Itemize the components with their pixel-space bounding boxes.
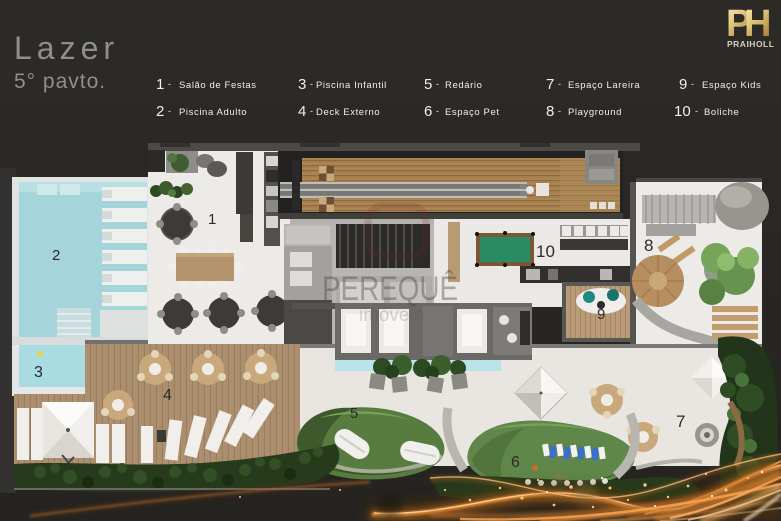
svg-text:5: 5 <box>350 405 358 422</box>
svg-text:Espaço Pet: Espaço Pet <box>445 107 500 118</box>
svg-text:3: 3 <box>298 76 306 93</box>
svg-text:-: - <box>436 106 439 116</box>
svg-text:-: - <box>310 79 313 89</box>
svg-text:PEREQUÊ: PEREQUÊ <box>322 270 458 308</box>
svg-text:4: 4 <box>298 103 306 120</box>
svg-text:1: 1 <box>156 76 164 93</box>
svg-text:Espaço Lareira: Espaço Lareira <box>568 80 640 91</box>
svg-text:10: 10 <box>536 242 555 261</box>
svg-text:10: 10 <box>674 103 691 120</box>
svg-text:6: 6 <box>511 454 520 471</box>
svg-text:PRAIHOLL: PRAIHOLL <box>727 39 774 49</box>
svg-text:imóveis: imóveis <box>359 305 423 326</box>
svg-text:6: 6 <box>424 103 432 120</box>
svg-text:5° pavto.: 5° pavto. <box>14 70 106 93</box>
svg-text:Redário: Redário <box>445 80 482 91</box>
svg-text:7: 7 <box>546 76 554 93</box>
svg-text:Boliche: Boliche <box>704 107 739 118</box>
svg-text:2: 2 <box>52 247 60 264</box>
svg-text:-: - <box>168 106 171 116</box>
svg-text:7: 7 <box>676 412 685 431</box>
svg-text:-: - <box>558 106 561 116</box>
svg-text:8: 8 <box>644 236 653 255</box>
svg-text:Salão de Festas: Salão de Festas <box>179 80 257 91</box>
svg-text:Lazer: Lazer <box>14 30 119 66</box>
svg-text:-: - <box>558 79 561 89</box>
svg-text:1: 1 <box>208 211 216 228</box>
svg-text:Espaço Kids: Espaço Kids <box>702 80 761 91</box>
svg-text:8: 8 <box>546 103 554 120</box>
svg-text:Playground: Playground <box>568 107 622 118</box>
svg-text:-: - <box>691 79 694 89</box>
svg-text:4: 4 <box>163 387 172 404</box>
svg-text:9: 9 <box>597 306 605 323</box>
svg-text:-: - <box>310 106 313 116</box>
svg-text:Deck Externo: Deck Externo <box>316 107 380 118</box>
svg-text:-: - <box>436 79 439 89</box>
svg-text:Piscina Adulto: Piscina Adulto <box>179 107 247 118</box>
svg-text:5: 5 <box>424 76 432 93</box>
svg-text:-: - <box>168 79 171 89</box>
svg-text:9: 9 <box>679 76 687 93</box>
svg-text:-: - <box>695 106 698 116</box>
svg-text:Piscina Infantil: Piscina Infantil <box>316 80 387 91</box>
svg-text:3: 3 <box>34 364 43 381</box>
svg-text:2: 2 <box>156 103 164 120</box>
